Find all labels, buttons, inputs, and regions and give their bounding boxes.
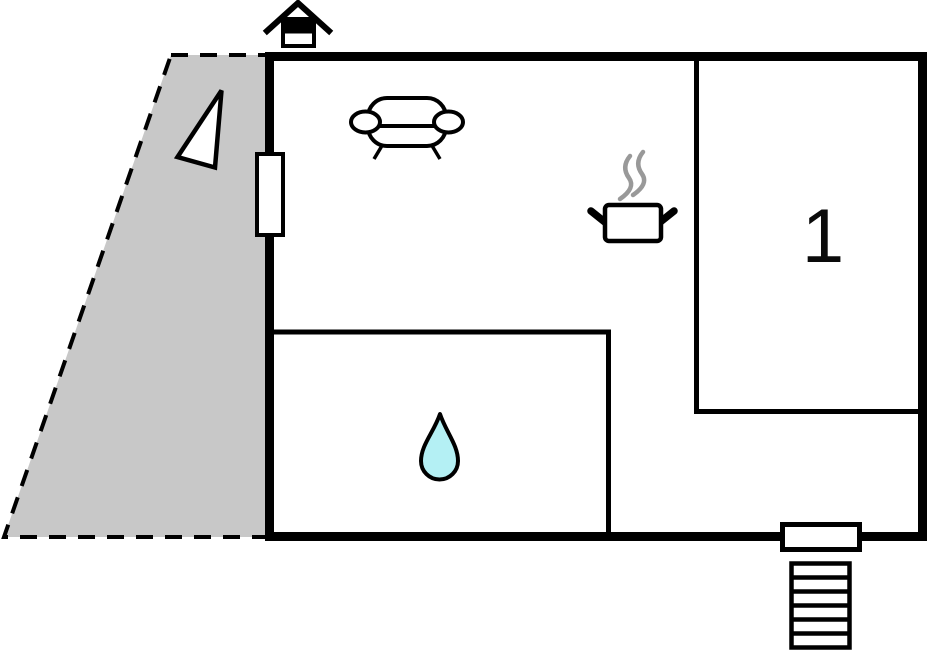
floorplan-canvas: 1: [0, 0, 928, 652]
entrance-door: [783, 525, 860, 550]
house-body-filled-top: [282, 18, 316, 34]
sofa-armrest-left: [351, 112, 380, 133]
stairs-icon: [790, 564, 852, 648]
pot-body: [605, 205, 661, 241]
window: [257, 154, 283, 235]
room-label: 1: [802, 194, 844, 279]
floorplan-page: 1: [0, 0, 928, 652]
house-entrance-icon: [267, 3, 329, 46]
sofa-armrest-right: [434, 112, 463, 133]
terrace-area: [4, 55, 269, 537]
